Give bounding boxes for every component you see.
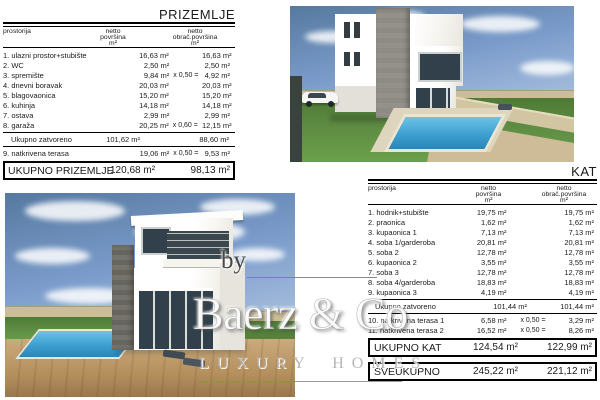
net-area-value: 16,63 m² — [96, 51, 169, 61]
room-name: 5. soba 2 — [368, 248, 449, 258]
balcony-railing — [167, 231, 229, 261]
room-name: 4. dnevni boravak — [3, 81, 96, 91]
subtotal-net: 101,62 m² — [106, 135, 140, 144]
calc-area-value: 18,83 m² — [563, 278, 597, 288]
net-area-value: 3,55 m² — [449, 258, 506, 268]
total-net: 120,68 m² — [110, 165, 148, 176]
ground-floor-total-box: UKUPNO PRIZEMLJE 120,68 m² 98,13 m² — [3, 161, 235, 180]
subtotal-calc: 88,60 m² — [140, 135, 235, 144]
grand-total-calc: 221,12 m² — [518, 366, 595, 377]
first-floor-total-box: UKUPNO KAT 124,54 m² 122,99 m² — [368, 338, 597, 357]
column-room: prostorija — [368, 186, 446, 204]
grand-total-box: SVEUKUPNO 245,22 m² 221,12 m² — [368, 362, 597, 381]
car-windows — [308, 93, 326, 98]
header-line: m² — [531, 198, 597, 204]
room-row: 3. spremište 9,84 m² x 0,50 = 4,92 m² — [3, 71, 235, 81]
calc-area-value: 16,63 m² — [202, 51, 235, 61]
calc-area-value: 7,13 m² — [563, 228, 597, 238]
calc-area-value: 14,18 m² — [202, 101, 235, 111]
room-row: 6. kupaonica 2 3,55 m² 3,55 m² — [368, 258, 597, 268]
factor-value — [169, 51, 202, 61]
listing-floor-area-sheet: PRIZEMLJE prostorija netto površina m² n… — [0, 0, 600, 400]
room-row: 2. WC 2,50 m² 2,50 m² — [3, 61, 235, 71]
net-area-value: 12,78 m² — [449, 248, 506, 258]
total-calc: 122,99 m² — [518, 342, 595, 353]
terrace-row: 10. natkrivena terasa 1 6,58 m² x 0,50 =… — [368, 316, 597, 326]
net-area-value: 20,03 m² — [96, 81, 169, 91]
net-area-value: 4,19 m² — [449, 288, 506, 298]
subtotal-net: 101,44 m² — [470, 302, 527, 311]
room-name: 2. WC — [3, 61, 96, 71]
net-area-value: 18,83 m² — [449, 278, 506, 288]
ground-floor-header: prostorija netto površina m² netto obrač… — [3, 27, 235, 47]
total-net: 124,54 m² — [466, 342, 518, 353]
net-area-value: 2,99 m² — [96, 111, 169, 121]
factor-value: x 0,50 = — [169, 149, 202, 159]
factor-value — [506, 208, 563, 218]
window — [344, 52, 350, 66]
fence — [290, 76, 302, 162]
window — [418, 52, 462, 82]
header-line: m² — [78, 41, 148, 47]
first-floor-header: prostorija netto površina m² netto obrač… — [368, 184, 597, 204]
room-name: 6. kuhinja — [3, 101, 96, 111]
ground-floor-subtotal: Ukupno zatvoreno 101,62 m² 88,60 m² — [3, 132, 235, 147]
sun-lounger — [498, 104, 512, 110]
terrace-row: 11. natkrivena terasa 2 16,52 m² x 0,50 … — [368, 326, 597, 336]
factor-value: x 0,50 = — [506, 316, 563, 326]
calc-area-value: 19,75 m² — [563, 208, 597, 218]
net-area-value: 14,18 m² — [96, 101, 169, 111]
house-facade-side — [220, 263, 245, 350]
room-name: 9. kupaonica 3 — [368, 288, 449, 298]
subtotal-label: Ukupno zatvoreno — [3, 135, 106, 144]
room-row: 1. ulazni prostor+stubište 16,63 m² 16,6… — [3, 51, 235, 61]
factor-value: x 0,50 = — [506, 326, 563, 336]
column-net-area: netto površina m² — [446, 186, 531, 204]
calc-area-value: 9,53 m² — [203, 149, 235, 159]
net-area-value: 9,84 m² — [96, 71, 169, 81]
ground-floor-title: PRIZEMLJE — [3, 8, 235, 21]
calc-area-value: 3,29 m² — [563, 316, 597, 326]
factor-value — [169, 91, 202, 101]
stone-cladding — [112, 245, 134, 350]
house-render-bottom — [5, 193, 295, 397]
factor-value — [506, 278, 563, 288]
cloud — [25, 201, 125, 221]
total-label: UKUPNO KAT — [370, 342, 466, 354]
house-facade-side — [335, 86, 376, 112]
factor-value — [506, 268, 563, 278]
factor-value — [169, 101, 202, 111]
factor-value — [169, 81, 202, 91]
grand-total-net: 245,22 m² — [466, 366, 518, 377]
room-row: 1. hodnik+stubište 19,75 m² 19,75 m² — [368, 208, 597, 218]
room-name: 5. blagovaonica — [3, 91, 96, 101]
calc-area-value: 8,26 m² — [563, 326, 597, 336]
room-row: 5. blagovaonica 15,20 m² 15,20 m² — [3, 91, 235, 101]
net-area-value: 6,58 m² — [449, 316, 506, 326]
column-net-area: netto površina m² — [78, 29, 148, 47]
column-calc-area: netto obrač.površina m² — [531, 186, 597, 204]
header-line: m² — [155, 41, 235, 47]
house-render-top — [290, 6, 574, 162]
calc-area-value: 20,81 m² — [563, 238, 597, 248]
first-floor-subtotal: Ukupno zatvoreno 101,44 m² 101,44 m² — [368, 299, 597, 314]
calc-area-value: 4,19 m² — [563, 288, 597, 298]
terrace-rows: 10. natkrivena terasa 1 6,58 m² x 0,50 =… — [368, 316, 597, 336]
room-name: 6. kupaonica 2 — [368, 258, 449, 268]
factor-value — [506, 238, 563, 248]
net-area-value: 12,78 m² — [449, 268, 506, 278]
window — [344, 22, 350, 38]
cloud — [230, 248, 285, 261]
factor-value — [169, 111, 202, 121]
room-name: 11. natkrivena terasa 2 — [368, 326, 449, 336]
net-area-value: 7,13 m² — [449, 228, 506, 238]
subtotal-label: Ukupno zatvoreno — [368, 302, 470, 311]
ground-floor-table: PRIZEMLJE prostorija netto površina m² n… — [3, 8, 235, 180]
column-room: prostorija — [3, 29, 78, 47]
room-row: 7. ostava 2,99 m² 2,99 m² — [3, 111, 235, 121]
factor-value — [169, 61, 202, 71]
cloud — [460, 16, 540, 32]
room-name: 10. natkrivena terasa 1 — [368, 316, 449, 326]
cloud — [520, 61, 574, 75]
room-name: 7. ostava — [3, 111, 96, 121]
pool — [384, 114, 506, 152]
room-row: 3. kupaonica 1 7,13 m² 7,13 m² — [368, 228, 597, 238]
window — [354, 22, 360, 38]
net-area-value: 19,75 m² — [449, 208, 506, 218]
room-row: 8. soba 4/garderoba 18,83 m² 18,83 m² — [368, 278, 597, 288]
calc-area-value: 2,50 m² — [203, 61, 235, 71]
calc-area-value: 1,62 m² — [563, 218, 597, 228]
calc-area-value: 12,78 m² — [563, 248, 597, 258]
room-name: 4. soba 1/garderoba — [368, 238, 449, 248]
room-name: 1. ulazni prostor+stubište — [3, 51, 96, 61]
factor-value — [506, 228, 563, 238]
factor-value — [506, 218, 563, 228]
room-row: 7. soba 3 12,78 m² 12,78 m² — [368, 268, 597, 278]
total-label: UKUPNO PRIZEMLJE — [5, 165, 110, 177]
room-name: 2. praonica — [368, 218, 449, 228]
room-row: 6. kuhinja 14,18 m² 14,18 m² — [3, 101, 235, 111]
room-name: 7. soba 3 — [368, 268, 449, 278]
room-row: 9. kupaonica 3 4,19 m² 4,19 m² — [368, 288, 597, 298]
column-calc-area: netto obrač.površina m² — [155, 29, 235, 47]
room-row: 4. soba 1/garderoba 20,81 m² 20,81 m² — [368, 238, 597, 248]
header-line: m² — [446, 198, 531, 204]
ground-floor-rows: 1. ulazni prostor+stubište 16,63 m² 16,6… — [3, 48, 235, 131]
room-name: 3. kupaonica 1 — [368, 228, 449, 238]
net-area-value: 20,25 m² — [96, 121, 169, 131]
car-wheel — [328, 101, 334, 107]
factor-value — [506, 248, 563, 258]
room-row: 2. praonica 1,62 m² 1,62 m² — [368, 218, 597, 228]
room-name: 9. natkrivena terasa — [3, 149, 96, 159]
window — [354, 52, 360, 66]
total-calc: 98,13 m² — [148, 165, 233, 176]
grand-total-label: SVEUKUPNO — [370, 366, 466, 378]
room-name: 8. soba 4/garderoba — [368, 278, 449, 288]
factor-value — [506, 258, 563, 268]
stone-cladding — [376, 8, 410, 118]
subtotal-calc: 101,44 m² — [527, 302, 597, 311]
room-row: 4. dnevni boravak 20,03 m² 20,03 m² — [3, 81, 235, 91]
terrace-row: 9. natkrivena terasa 19,06 m² x 0,50 = 9… — [3, 149, 235, 159]
net-area-value: 2,50 m² — [96, 61, 169, 71]
calc-area-value: 2,99 m² — [203, 111, 235, 121]
calc-area-value: 20,03 m² — [202, 81, 235, 91]
calc-area-value: 3,55 m² — [563, 258, 597, 268]
factor-value: x 0,50 = — [169, 71, 202, 81]
net-area-value: 15,20 m² — [96, 91, 169, 101]
cloud — [15, 248, 90, 264]
calc-area-value: 15,20 m² — [202, 91, 235, 101]
first-floor-table: KAT prostorija netto površina m² netto o… — [368, 165, 597, 381]
net-area-value: 20,81 m² — [449, 238, 506, 248]
room-name: 8. garaža — [3, 121, 96, 131]
room-name: 1. hodnik+stubište — [368, 208, 449, 218]
glass-doors — [139, 288, 213, 349]
calc-area-value: 4,92 m² — [203, 71, 235, 81]
factor-value — [506, 288, 563, 298]
net-area-value: 1,62 m² — [449, 218, 506, 228]
car-wheel — [306, 101, 312, 107]
net-area-value: 16,52 m² — [449, 326, 506, 336]
calc-area-value: 12,78 m² — [563, 268, 597, 278]
net-area-value: 19,06 m² — [96, 149, 169, 159]
first-floor-rows: 1. hodnik+stubište 19,75 m² 19,75 m² 2. … — [368, 205, 597, 298]
room-row: 5. soba 2 12,78 m² 12,78 m² — [368, 248, 597, 258]
room-row: 8. garaža 20,25 m² x 0,60 = 12,15 m² — [3, 121, 235, 131]
room-name: 3. spremište — [3, 71, 96, 81]
first-floor-title: KAT — [368, 165, 597, 178]
calc-area-value: 12,15 m² — [202, 121, 235, 131]
factor-value: x 0,60 = — [169, 121, 202, 131]
